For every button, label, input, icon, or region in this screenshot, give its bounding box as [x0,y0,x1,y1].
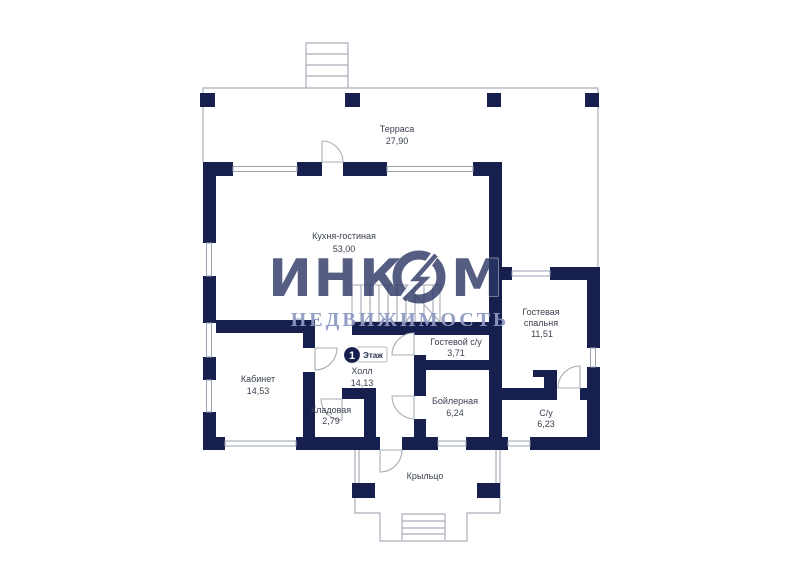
watermark: ИНК М [268,249,505,309]
office-name: Кабинет [241,374,275,384]
terrace-name: Терраса [380,124,415,134]
guest-wc-area: 3,71 [447,348,465,358]
room-label-wc: С/у 6,23 [537,408,555,429]
guest-bedroom-area: 11,51 [531,329,553,339]
floor-plan-page: ИНК М НЕДВИЖИМОСТЬ Терраса 27,90 Кухня-г… [0,0,800,584]
hall-name: Холл [351,366,372,376]
guest-bedroom-name-line2: спальня [524,318,558,328]
floor-number-badge: Этаж 1 [344,347,388,364]
watermark-brand-right: М [451,249,505,309]
storage-area: 2,79 [322,416,340,426]
kitchen-living-area: 53,00 [333,244,356,254]
floor-badge-label: Этаж [363,351,383,360]
boiler-area: 6,24 [446,408,464,418]
wc-name: С/у [539,408,553,418]
guest-wc-name: Гостевой с/у [430,337,482,347]
storage-name: Кладовая [311,405,351,415]
watermark-brand-left: ИНК [268,249,404,309]
guest-bedroom-name-line1: Гостевая [522,307,559,317]
room-label-porch: Крыльцо [407,471,444,481]
kitchen-living-name: Кухня-гостиная [312,231,376,241]
floor-badge-number: 1 [349,350,355,362]
wc-area: 6,23 [537,419,555,429]
floor-plan-drawing: ИНК М НЕДВИЖИМОСТЬ Терраса 27,90 Кухня-г… [0,0,800,584]
hall-area: 14,13 [351,378,374,388]
office-area: 14,53 [247,386,270,396]
watermark-subtitle: НЕДВИЖИМОСТЬ [291,309,510,331]
terrace-area: 27,90 [386,136,409,146]
boiler-name: Бойлерная [432,396,478,406]
